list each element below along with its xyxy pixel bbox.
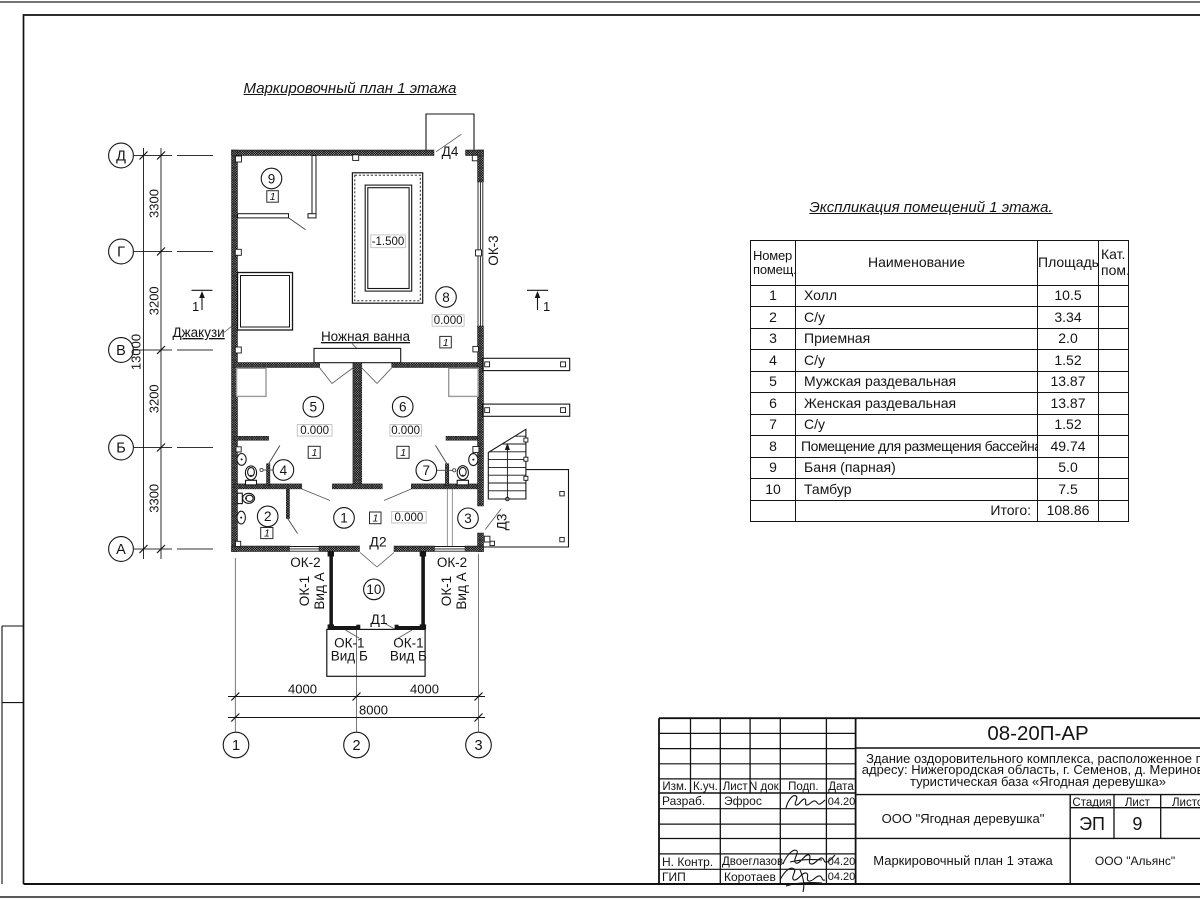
svg-text:1: 1 [192, 299, 199, 314]
svg-text:1: 1 [340, 511, 348, 526]
svg-text:ОК-2: ОК-2 [437, 555, 467, 570]
svg-text:ОК-2: ОК-2 [290, 555, 320, 570]
svg-text:0.000: 0.000 [395, 512, 424, 524]
svg-text:2: 2 [352, 738, 360, 754]
svg-text:3: 3 [474, 738, 482, 754]
svg-text:Д1: Д1 [370, 611, 387, 627]
svg-text:0.000: 0.000 [391, 425, 420, 437]
svg-text:4: 4 [280, 463, 288, 478]
svg-text:8000: 8000 [359, 703, 388, 718]
svg-text:5: 5 [310, 400, 318, 415]
svg-text:Вид А: Вид А [454, 572, 469, 609]
svg-text:0.000: 0.000 [300, 425, 329, 437]
svg-text:В: В [116, 343, 126, 359]
svg-text:Д2: Д2 [369, 534, 386, 550]
svg-text:1: 1 [400, 447, 406, 459]
svg-text:Вид А: Вид А [312, 572, 327, 609]
svg-text:ОК-1: ОК-1 [297, 576, 312, 606]
svg-text:А: А [116, 542, 126, 558]
svg-text:3200: 3200 [147, 384, 162, 413]
svg-text:4000: 4000 [410, 682, 439, 697]
svg-text:1: 1 [270, 191, 276, 203]
svg-text:3200: 3200 [147, 286, 162, 315]
svg-text:1: 1 [232, 738, 240, 754]
svg-text:2: 2 [264, 509, 272, 524]
svg-text:13000: 13000 [129, 334, 144, 370]
svg-text:Вид Б: Вид Б [331, 649, 368, 664]
svg-text:1: 1 [311, 447, 317, 459]
svg-text:9: 9 [268, 171, 276, 186]
svg-text:1: 1 [372, 513, 378, 525]
svg-text:Б: Б [116, 441, 126, 457]
svg-text:6: 6 [399, 400, 407, 415]
svg-text:Ножная ванна: Ножная ванна [321, 329, 411, 344]
svg-text:1: 1 [543, 299, 550, 314]
svg-text:0.000: 0.000 [434, 315, 463, 327]
svg-text:Г: Г [117, 245, 125, 261]
svg-text:3300: 3300 [147, 484, 162, 513]
svg-text:Д: Д [116, 149, 126, 165]
svg-text:1: 1 [264, 528, 270, 540]
svg-text:4000: 4000 [288, 682, 317, 697]
svg-text:10: 10 [366, 582, 381, 597]
svg-text:Д3: Д3 [495, 514, 510, 531]
svg-text:Д4: Д4 [442, 144, 459, 159]
svg-text:Вид Б: Вид Б [390, 649, 427, 664]
svg-text:3: 3 [464, 511, 472, 526]
svg-text:3300: 3300 [147, 189, 162, 218]
svg-text:Джакузи: Джакузи [173, 325, 225, 340]
svg-text:ОК-1: ОК-1 [439, 576, 454, 606]
svg-text:8: 8 [442, 290, 450, 305]
svg-text:ОК-3: ОК-3 [486, 235, 501, 265]
svg-text:-1.500: -1.500 [372, 236, 405, 248]
svg-text:1: 1 [443, 337, 449, 349]
svg-text:7: 7 [423, 463, 431, 478]
